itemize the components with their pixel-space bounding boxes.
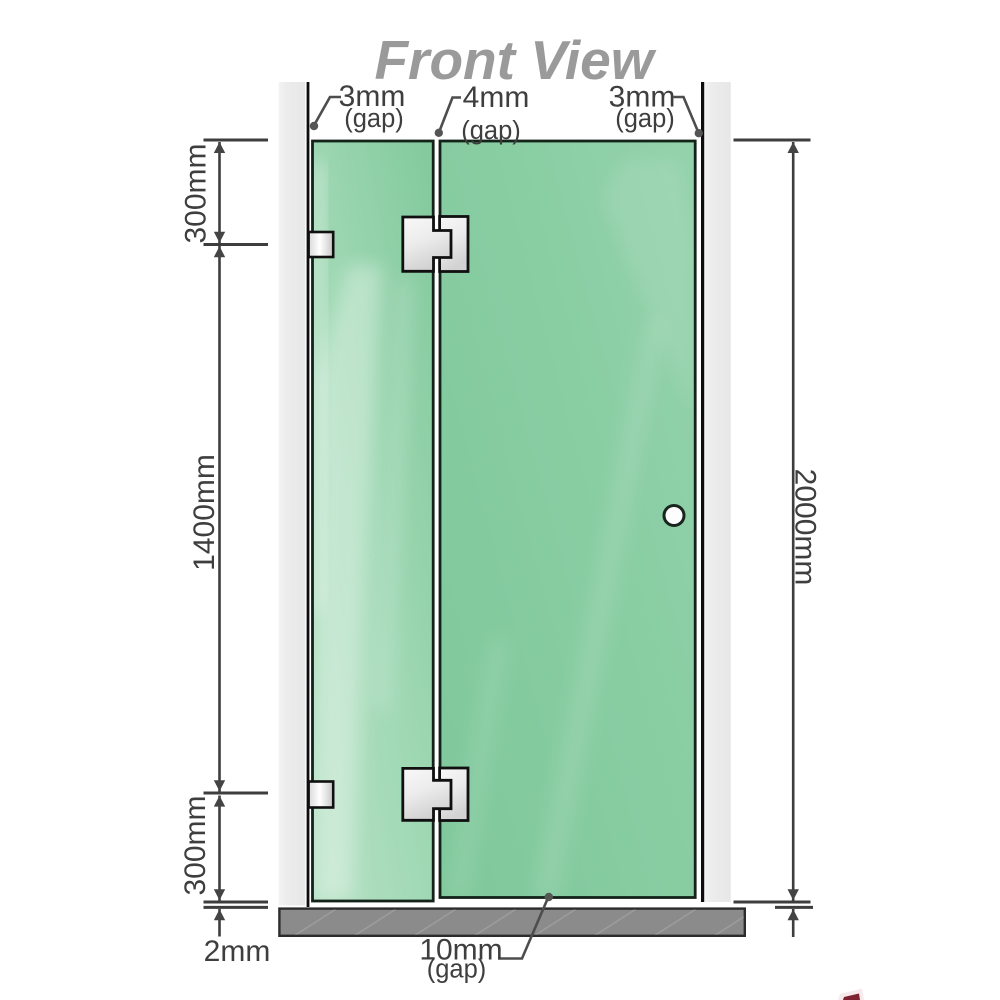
svg-text:300mm: 300mm — [180, 143, 213, 243]
svg-text:300mm: 300mm — [179, 795, 212, 895]
svg-text:4mm: 4mm — [463, 81, 530, 114]
svg-text:(gap): (gap) — [427, 956, 487, 984]
svg-text:1400mm: 1400mm — [188, 454, 221, 571]
svg-text:2000mm: 2000mm — [789, 469, 822, 586]
svg-text:(gap): (gap) — [461, 117, 521, 145]
svg-text:2mm: 2mm — [204, 935, 271, 968]
svg-text:(gap): (gap) — [615, 105, 675, 133]
svg-text:(gap): (gap) — [344, 105, 404, 133]
